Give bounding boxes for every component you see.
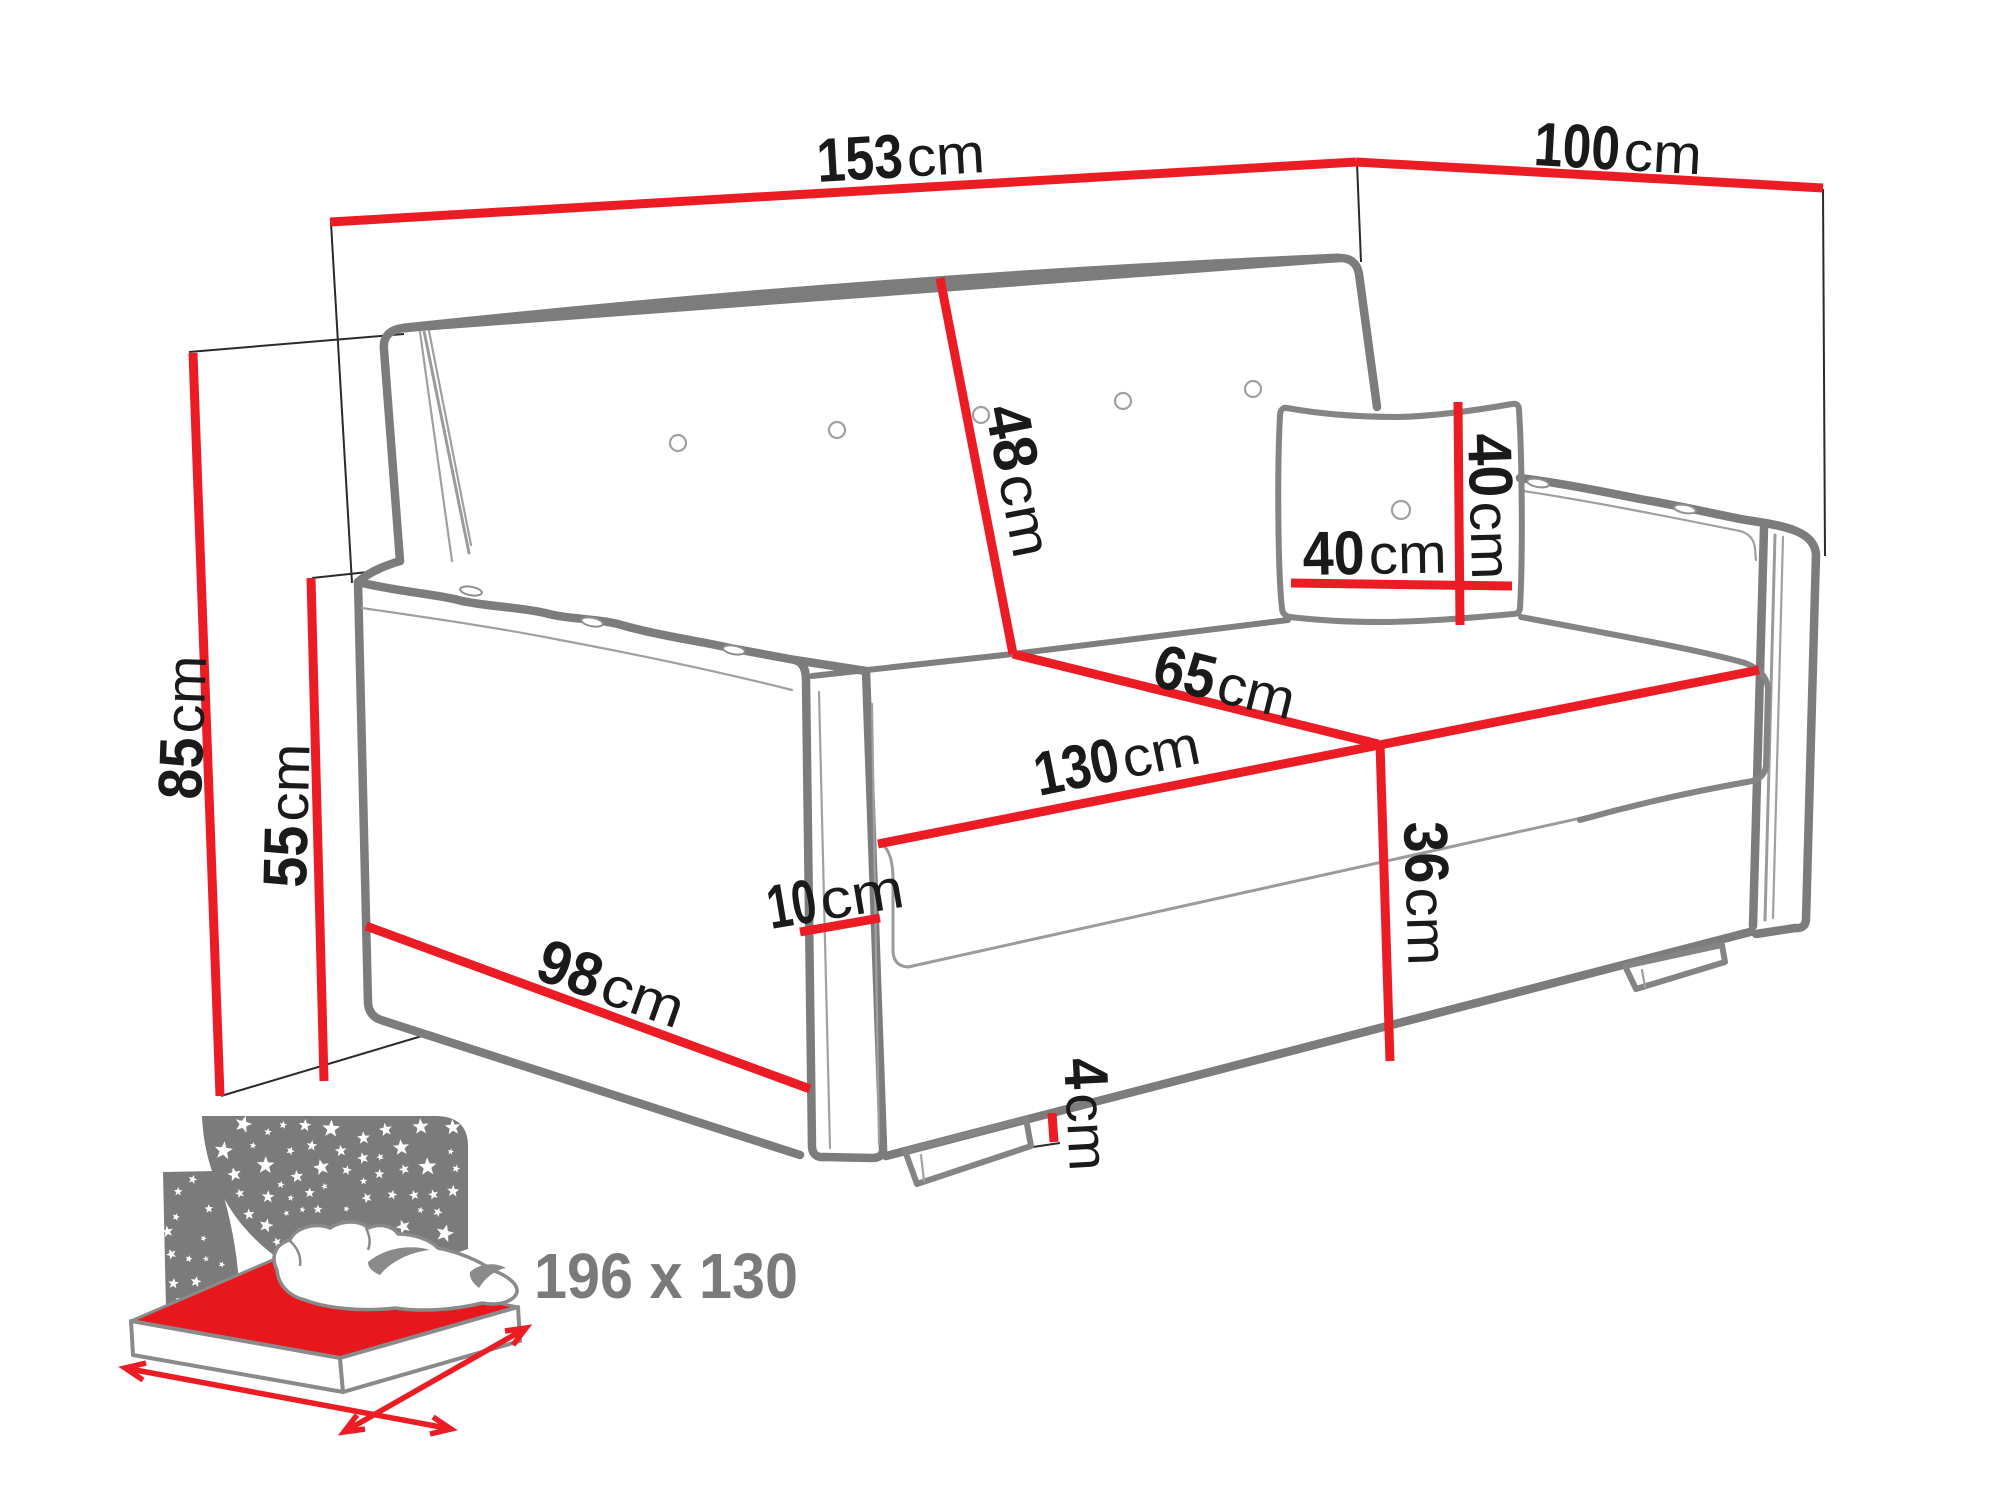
svg-text:cm: cm (152, 654, 218, 734)
svg-text:cm: cm (1394, 886, 1459, 966)
svg-text:cm: cm (1622, 119, 1703, 186)
svg-text:196 x 130: 196 x 130 (534, 1240, 798, 1312)
svg-text:cm: cm (1054, 1091, 1121, 1172)
svg-text:153: 153 (815, 122, 905, 196)
svg-text:cm: cm (905, 121, 987, 189)
svg-text:48: 48 (971, 399, 1051, 477)
svg-text:40: 40 (1454, 432, 1525, 498)
svg-text:4: 4 (1050, 1056, 1121, 1091)
svg-text:cm: cm (1368, 521, 1447, 585)
svg-text:100: 100 (1532, 110, 1622, 184)
svg-text:85: 85 (146, 736, 217, 800)
svg-text:55: 55 (251, 825, 321, 889)
svg-text:cm: cm (257, 743, 322, 823)
svg-text:40: 40 (1302, 519, 1365, 589)
svg-text:36: 36 (1390, 820, 1461, 884)
svg-text:cm: cm (1458, 500, 1523, 580)
